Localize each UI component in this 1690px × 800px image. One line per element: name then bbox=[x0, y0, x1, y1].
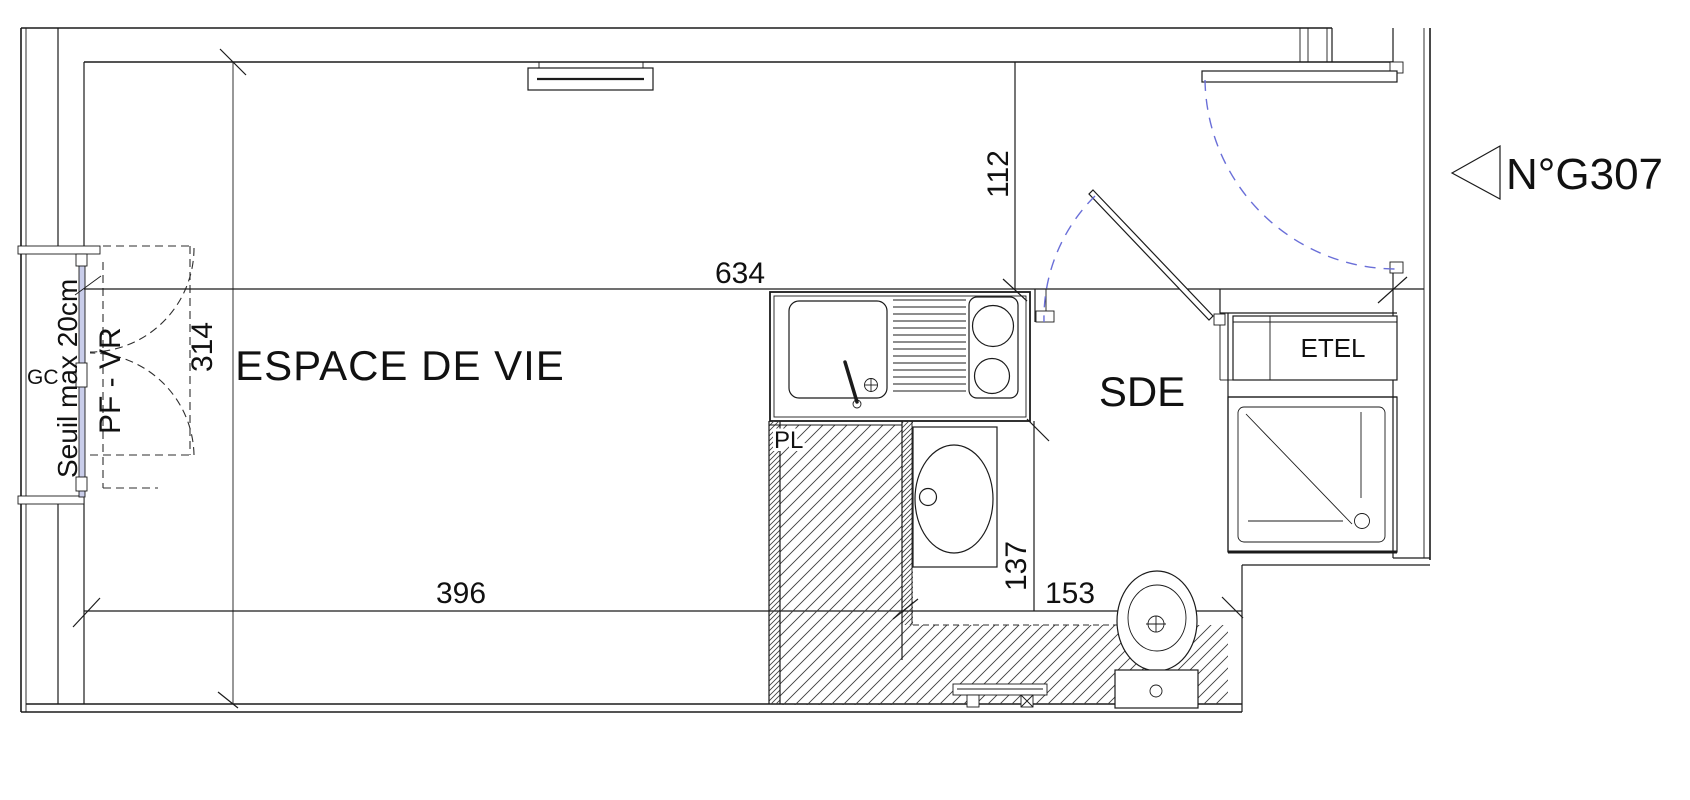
unit-arrow-icon bbox=[1452, 146, 1500, 199]
sink-drain bbox=[865, 379, 878, 392]
dim-112: 112 bbox=[982, 150, 1015, 198]
toilet-tank bbox=[1115, 670, 1198, 708]
shower bbox=[1228, 397, 1397, 552]
shower-drain bbox=[1355, 514, 1370, 529]
toilet bbox=[1115, 571, 1198, 708]
washbasin bbox=[913, 427, 997, 567]
unit-number: N°G307 bbox=[1506, 150, 1663, 199]
dim-634: 634 bbox=[715, 257, 765, 290]
room-label-etel: ETEL bbox=[1300, 333, 1365, 363]
entry-door-swing-arc bbox=[1205, 80, 1395, 269]
floor-plan-drawing: N°G307 ESPACE DE VIE SDE PL ETEL GC Seui… bbox=[0, 0, 1690, 800]
floor-plan-page: N°G307 ESPACE DE VIE SDE PL ETEL GC Seui… bbox=[0, 0, 1690, 800]
annotation-seuil: Seuil max 20cm bbox=[52, 279, 83, 478]
unit-marker: N°G307 bbox=[1452, 146, 1663, 199]
window-head bbox=[18, 246, 100, 254]
annotation-pf-vr: PF - VR bbox=[94, 327, 127, 434]
entry-door bbox=[1202, 62, 1403, 273]
washbasin-counter bbox=[913, 427, 997, 567]
sde-door-stop bbox=[1036, 311, 1054, 322]
dim-314: 314 bbox=[186, 322, 219, 372]
exterior-walls bbox=[21, 28, 1430, 712]
dim-396: 396 bbox=[436, 577, 486, 610]
room-label-living: ESPACE DE VIE bbox=[235, 342, 565, 389]
kitchen-counter bbox=[770, 292, 1030, 421]
entry-door-jamb-bottom bbox=[1390, 262, 1403, 273]
wall-radiator bbox=[528, 62, 653, 90]
closet-pl-hatch bbox=[780, 425, 902, 705]
room-label-sde: SDE bbox=[1099, 368, 1185, 415]
toilet-bowl bbox=[1117, 571, 1197, 671]
kitchenette bbox=[770, 292, 1030, 421]
dim-137: 137 bbox=[1000, 541, 1033, 591]
dim-153: 153 bbox=[1045, 577, 1095, 610]
window-sill bbox=[18, 496, 84, 504]
entry-door-leaf bbox=[1202, 71, 1397, 82]
sde-door-leaf bbox=[1089, 190, 1213, 320]
sde-door bbox=[1035, 190, 1225, 325]
room-label-pl: PL bbox=[774, 427, 803, 454]
sde-door-swing-arc bbox=[1044, 196, 1095, 322]
shower-tray bbox=[1238, 407, 1385, 542]
sde-door-jamb bbox=[1214, 314, 1225, 325]
